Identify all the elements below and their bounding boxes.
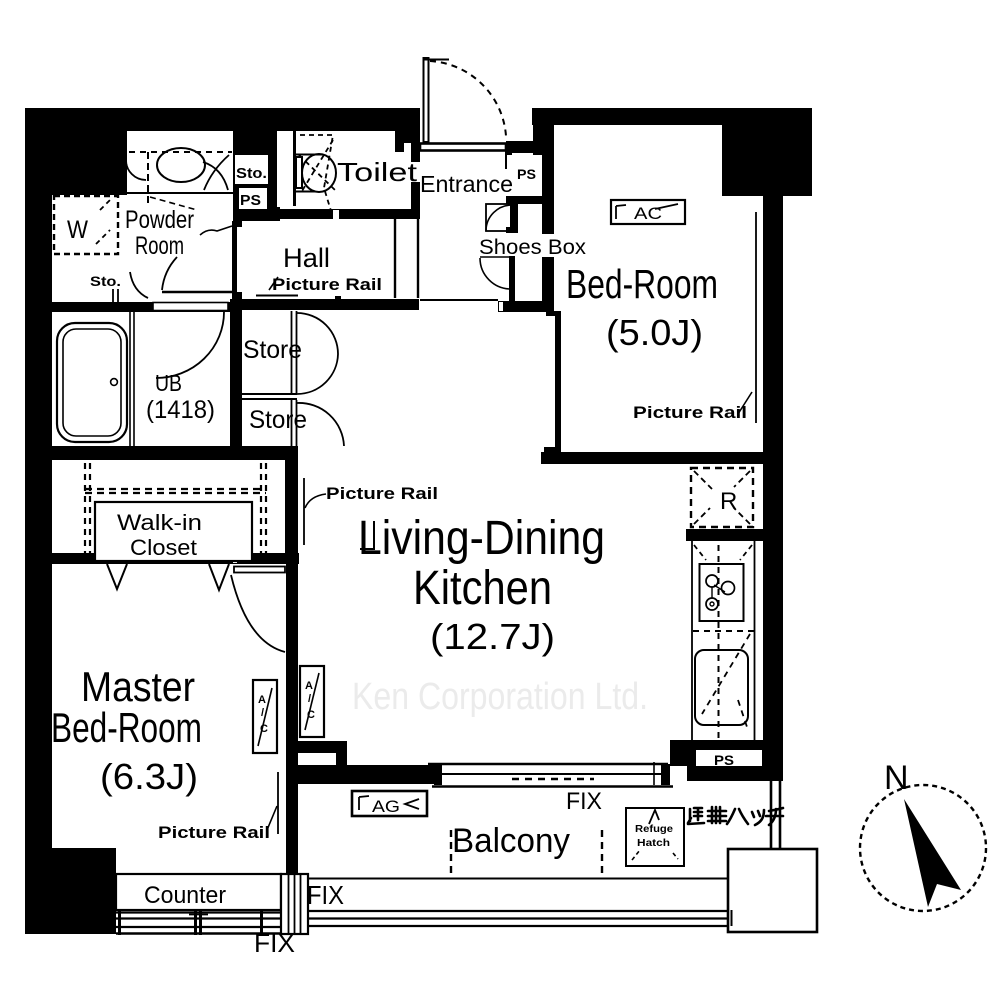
svg-text:Picture Rail: Picture Rail — [633, 403, 747, 422]
svg-text:Toilet: Toilet — [337, 157, 418, 187]
svg-text:R: R — [720, 488, 737, 515]
svg-text:FIX: FIX — [307, 880, 344, 910]
svg-text:Closet: Closet — [130, 535, 197, 560]
svg-text:C: C — [307, 709, 315, 721]
svg-text:/: / — [308, 693, 311, 705]
svg-text:Room: Room — [135, 232, 184, 260]
svg-text:Balcony: Balcony — [452, 822, 570, 860]
svg-text:(5.0J): (5.0J) — [606, 312, 703, 353]
svg-text:FIX: FIX — [254, 928, 295, 958]
svg-text:PS: PS — [240, 192, 261, 209]
svg-text:Living-Dining: Living-Dining — [358, 512, 605, 565]
svg-text:AC: AC — [634, 204, 662, 223]
svg-text:Walk-in: Walk-in — [117, 510, 202, 535]
svg-text:AG: AG — [372, 797, 400, 816]
svg-text:Hall: Hall — [283, 243, 330, 273]
svg-text:(6.3J): (6.3J) — [100, 756, 198, 797]
svg-text:Kitchen: Kitchen — [413, 562, 552, 615]
svg-text:Picture Rail: Picture Rail — [272, 275, 382, 294]
svg-text:Picture Rail: Picture Rail — [326, 484, 438, 503]
svg-text:FIX: FIX — [566, 788, 602, 815]
svg-text:Sto.: Sto. — [236, 165, 267, 182]
svg-text:Store: Store — [249, 406, 307, 434]
svg-text:PS: PS — [714, 752, 734, 768]
svg-text:Counter: Counter — [144, 882, 226, 909]
svg-text:W: W — [67, 216, 88, 244]
svg-text:Refuge: Refuge — [635, 823, 673, 835]
svg-text:Picture Rail: Picture Rail — [158, 823, 270, 842]
svg-text:(12.7J): (12.7J) — [430, 616, 555, 657]
svg-text:UB: UB — [155, 370, 182, 396]
svg-text:(1418): (1418) — [146, 396, 215, 424]
svg-text:PS: PS — [517, 166, 536, 182]
svg-text:Entrance: Entrance — [420, 171, 513, 197]
svg-text:/: / — [261, 707, 264, 719]
svg-text:Hatch: Hatch — [637, 837, 670, 849]
svg-text:Bed-Room: Bed-Room — [51, 704, 202, 751]
svg-text:Ken Corporation Ltd.: Ken Corporation Ltd. — [352, 676, 648, 718]
svg-text:N: N — [884, 759, 909, 797]
svg-text:Bed-Room: Bed-Room — [566, 261, 718, 307]
svg-text:A: A — [258, 694, 266, 706]
svg-text:Store: Store — [243, 336, 302, 364]
svg-text:Sto.: Sto. — [90, 273, 121, 289]
svg-text:Shoes Box: Shoes Box — [479, 236, 587, 259]
svg-text:Master: Master — [81, 663, 195, 710]
svg-text:A: A — [305, 680, 313, 692]
svg-text:C: C — [260, 723, 268, 735]
svg-text:Powder: Powder — [125, 206, 194, 234]
